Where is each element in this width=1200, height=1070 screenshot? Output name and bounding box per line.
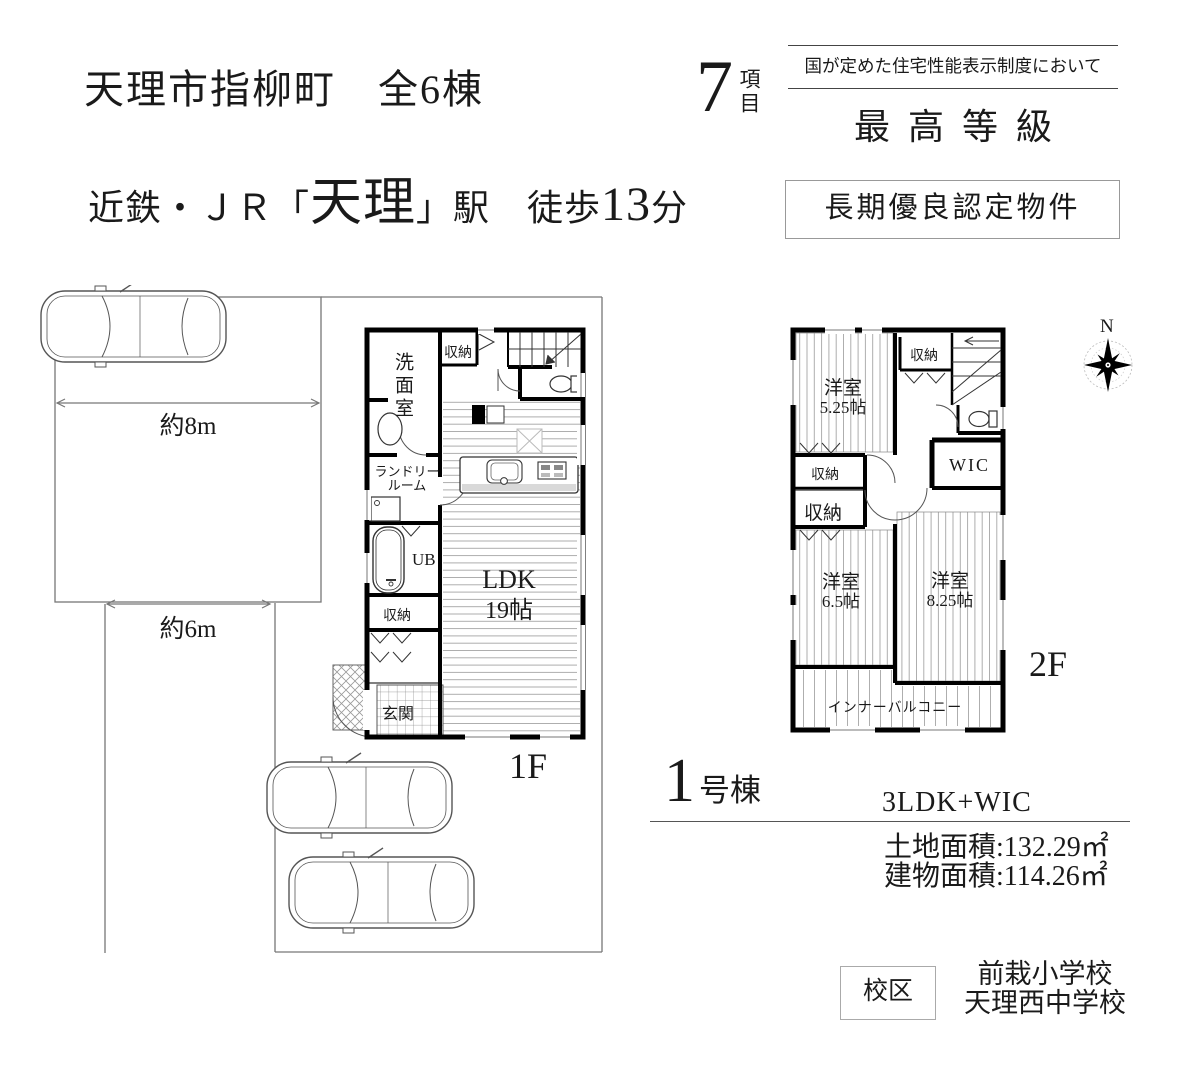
access-mid: 」駅 徒歩 [416, 188, 601, 228]
room-label-laundry-2: ルーム [369, 475, 445, 494]
access-prefix: 近鉄・ＪＲ「 [88, 188, 310, 228]
toilet-fixture-2f [969, 411, 997, 427]
unit-layout: 3LDK+WIC [882, 787, 1032, 819]
room-label-storage-left-1f: 収納 [383, 605, 411, 625]
junior-high-school: 天理西中学校 [945, 989, 1145, 1018]
area-info: 土地面積:132.29㎡ 建物面積:114.26㎡ [884, 833, 1109, 891]
room-label-storage-top-2f: 収納 [910, 345, 938, 365]
unit-number-block: 1 号棟 [664, 750, 761, 812]
stairs-1f [508, 332, 581, 367]
station-access-line: 近鉄・ＪＲ「天理」駅 徒歩13分 [88, 160, 688, 235]
school-district-box: 校区 [840, 966, 936, 1020]
compass-north-label: N [1100, 316, 1114, 338]
certification-box: 長期優良認定物件 [785, 180, 1120, 239]
building-area: 建物面積:114.26㎡ [884, 862, 1109, 891]
unit-number: 1 [664, 750, 695, 812]
compass-icon [1084, 338, 1132, 392]
access-suffix: 分 [651, 188, 688, 228]
room-label-entrance: 玄関 [382, 700, 414, 724]
badge-count-unit: 項目 [734, 68, 764, 116]
room-label-washroom: 洗面室 [389, 352, 416, 421]
room-label-bedroom1-size: 5.25帖 [803, 393, 883, 418]
car-2 [289, 848, 474, 933]
toilet-fixture-1f [550, 376, 579, 392]
school-names: 前栽小学校 天理西中学校 [945, 960, 1145, 1018]
flyer-page: 天理市指柳町 全6棟 近鉄・ＪＲ「天理」駅 徒歩13分 7 項目 国が定めた住宅… [0, 0, 1200, 1070]
room-label-balcony: インナーバルコニー [815, 697, 975, 717]
badge-grade: 最高等級 [788, 98, 1118, 150]
floor2-label: 2F [1029, 643, 1067, 685]
room-label-bedroom3-size: 8.25帖 [905, 586, 995, 611]
floor1-label: 1F [509, 745, 547, 787]
dimension-6m-arrow [107, 600, 270, 608]
kitchen-counter [460, 457, 578, 493]
room-label-storage-low-2f: 収納 [804, 498, 842, 525]
stairs-2f [952, 337, 1001, 405]
room-label-bath: UB [412, 550, 436, 570]
station-name: 天理 [310, 175, 416, 232]
room-label-storage-top-1f: 収納 [444, 342, 472, 362]
dimension-8m-label: 約8m [128, 406, 248, 442]
land-area: 土地面積:132.29㎡ [884, 833, 1109, 862]
elementary-school: 前栽小学校 [945, 960, 1145, 989]
dimension-6m-label: 約6m [128, 609, 248, 645]
room-label-storage-mid-2f: 収納 [811, 464, 839, 484]
badge-count: 7 [696, 50, 733, 124]
unit-number-suffix: 号棟 [699, 765, 761, 810]
room-label-ldk-size: 19帖 [459, 590, 559, 625]
unit-info-divider [650, 821, 1130, 822]
bathtub [373, 527, 404, 593]
car-top-view [41, 285, 226, 367]
room-label-bedroom2-size: 6.5帖 [801, 587, 881, 612]
page-title: 天理市指柳町 全6棟 [84, 57, 484, 115]
walk-minutes: 13 [601, 178, 651, 231]
laundry-washer [371, 497, 400, 521]
site-and-floor1-plan [40, 285, 640, 1030]
room-label-wic: WIC [949, 455, 990, 476]
porch-hatch [333, 665, 368, 730]
badge-subtitle: 国が定めた住宅性能表示制度において [788, 45, 1118, 89]
